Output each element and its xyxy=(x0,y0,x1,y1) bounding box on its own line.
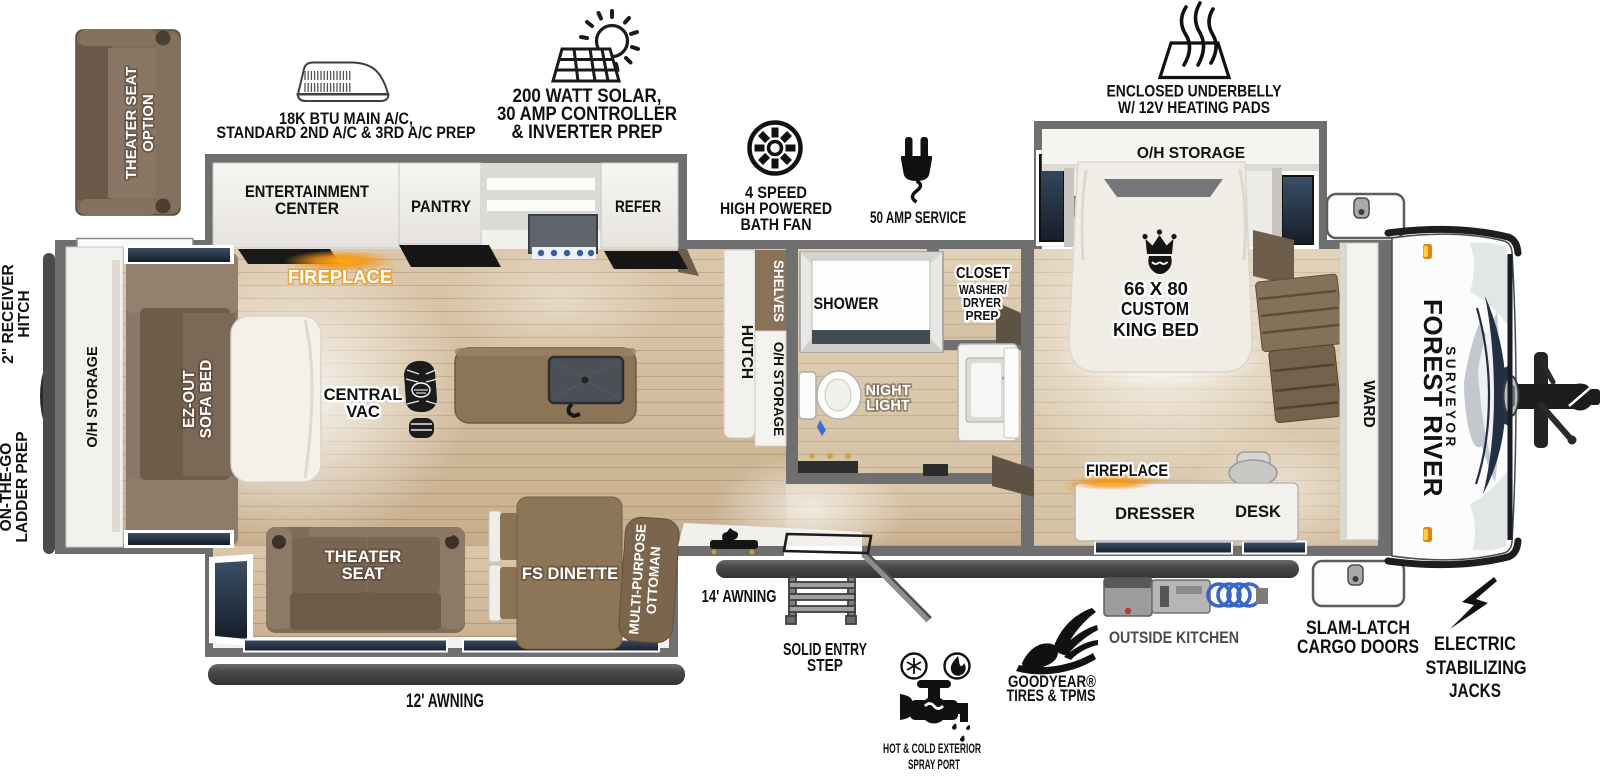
svg-text:CUSTOM: CUSTOM xyxy=(1121,299,1189,319)
svg-text:12' AWNING: 12' AWNING xyxy=(406,691,484,712)
svg-text:ON-THE-GO: ON-THE-GO xyxy=(0,443,15,532)
svg-text:CENTER: CENTER xyxy=(275,199,339,218)
svg-text:NIGHT: NIGHT xyxy=(865,383,910,399)
svg-text:DESK: DESK xyxy=(1235,503,1281,521)
svg-text:STANDARD 2ND A/C & 3RD A/C PRE: STANDARD 2ND A/C & 3RD A/C PREP xyxy=(217,124,476,142)
svg-text:66 X 80: 66 X 80 xyxy=(1124,279,1188,299)
svg-text:& INVERTER PREP: & INVERTER PREP xyxy=(512,122,663,143)
svg-text:KING BED: KING BED xyxy=(1113,320,1199,340)
svg-text:STEP: STEP xyxy=(807,655,843,675)
svg-text:50 AMP SERVICE: 50 AMP SERVICE xyxy=(870,208,966,227)
svg-text:OUTSIDE KITCHEN: OUTSIDE KITCHEN xyxy=(1109,628,1239,647)
svg-text:LADDER PREP: LADDER PREP xyxy=(14,431,31,542)
svg-text:O/H STORAGE: O/H STORAGE xyxy=(85,346,101,448)
svg-text:CLOSET: CLOSET xyxy=(956,265,1010,282)
svg-text:SHELVES: SHELVES xyxy=(771,260,786,322)
svg-text:THEATER: THEATER xyxy=(325,548,402,566)
svg-text:VAC: VAC xyxy=(346,403,380,421)
svg-text:STABILIZING: STABILIZING xyxy=(1426,657,1527,679)
svg-text:DRESSER: DRESSER xyxy=(1115,505,1195,523)
svg-text:2" RECEIVER: 2" RECEIVER xyxy=(0,264,17,364)
svg-text:HUTCH: HUTCH xyxy=(738,325,755,379)
svg-text:SPRAY PORT: SPRAY PORT xyxy=(908,756,960,772)
svg-text:PANTRY: PANTRY xyxy=(411,197,472,216)
svg-text:FIREPLACE: FIREPLACE xyxy=(288,267,392,287)
svg-text:SHOWER: SHOWER xyxy=(814,294,879,313)
svg-text:SOFA BED: SOFA BED xyxy=(198,360,215,439)
svg-text:HOT & COLD EXTERIOR: HOT & COLD EXTERIOR xyxy=(883,740,981,756)
svg-text:FS DINETTE: FS DINETTE xyxy=(522,565,618,583)
svg-text:LIGHT: LIGHT xyxy=(866,398,910,414)
svg-text:JACKS: JACKS xyxy=(1449,680,1501,702)
svg-text:BATH FAN: BATH FAN xyxy=(741,215,812,234)
svg-text:THEATER SEAT: THEATER SEAT xyxy=(123,67,140,180)
svg-text:HITCH: HITCH xyxy=(16,290,33,337)
svg-text:CENTRAL: CENTRAL xyxy=(324,386,403,404)
svg-text:WARD: WARD xyxy=(1360,380,1377,427)
svg-text:SEAT: SEAT xyxy=(342,565,385,583)
svg-text:TIRES & TPMS: TIRES & TPMS xyxy=(1007,687,1096,705)
svg-text:O/H STORAGE: O/H STORAGE xyxy=(771,342,786,436)
svg-text:14' AWNING: 14' AWNING xyxy=(702,586,777,606)
svg-text:EZ-OUT: EZ-OUT xyxy=(181,370,198,428)
svg-text:SURVEYOR: SURVEYOR xyxy=(1443,346,1458,450)
svg-text:OPTION: OPTION xyxy=(140,94,157,152)
svg-text:SLAM-LATCH: SLAM-LATCH xyxy=(1306,618,1410,639)
svg-text:W/ 12V HEATING PADS: W/ 12V HEATING PADS xyxy=(1118,98,1270,117)
svg-text:CARGO DOORS: CARGO DOORS xyxy=(1297,637,1419,658)
svg-text:REFER: REFER xyxy=(615,197,661,216)
svg-text:O/H STORAGE: O/H STORAGE xyxy=(1137,145,1245,162)
svg-text:PREP: PREP xyxy=(966,308,999,323)
svg-text:ELECTRIC: ELECTRIC xyxy=(1434,633,1516,655)
